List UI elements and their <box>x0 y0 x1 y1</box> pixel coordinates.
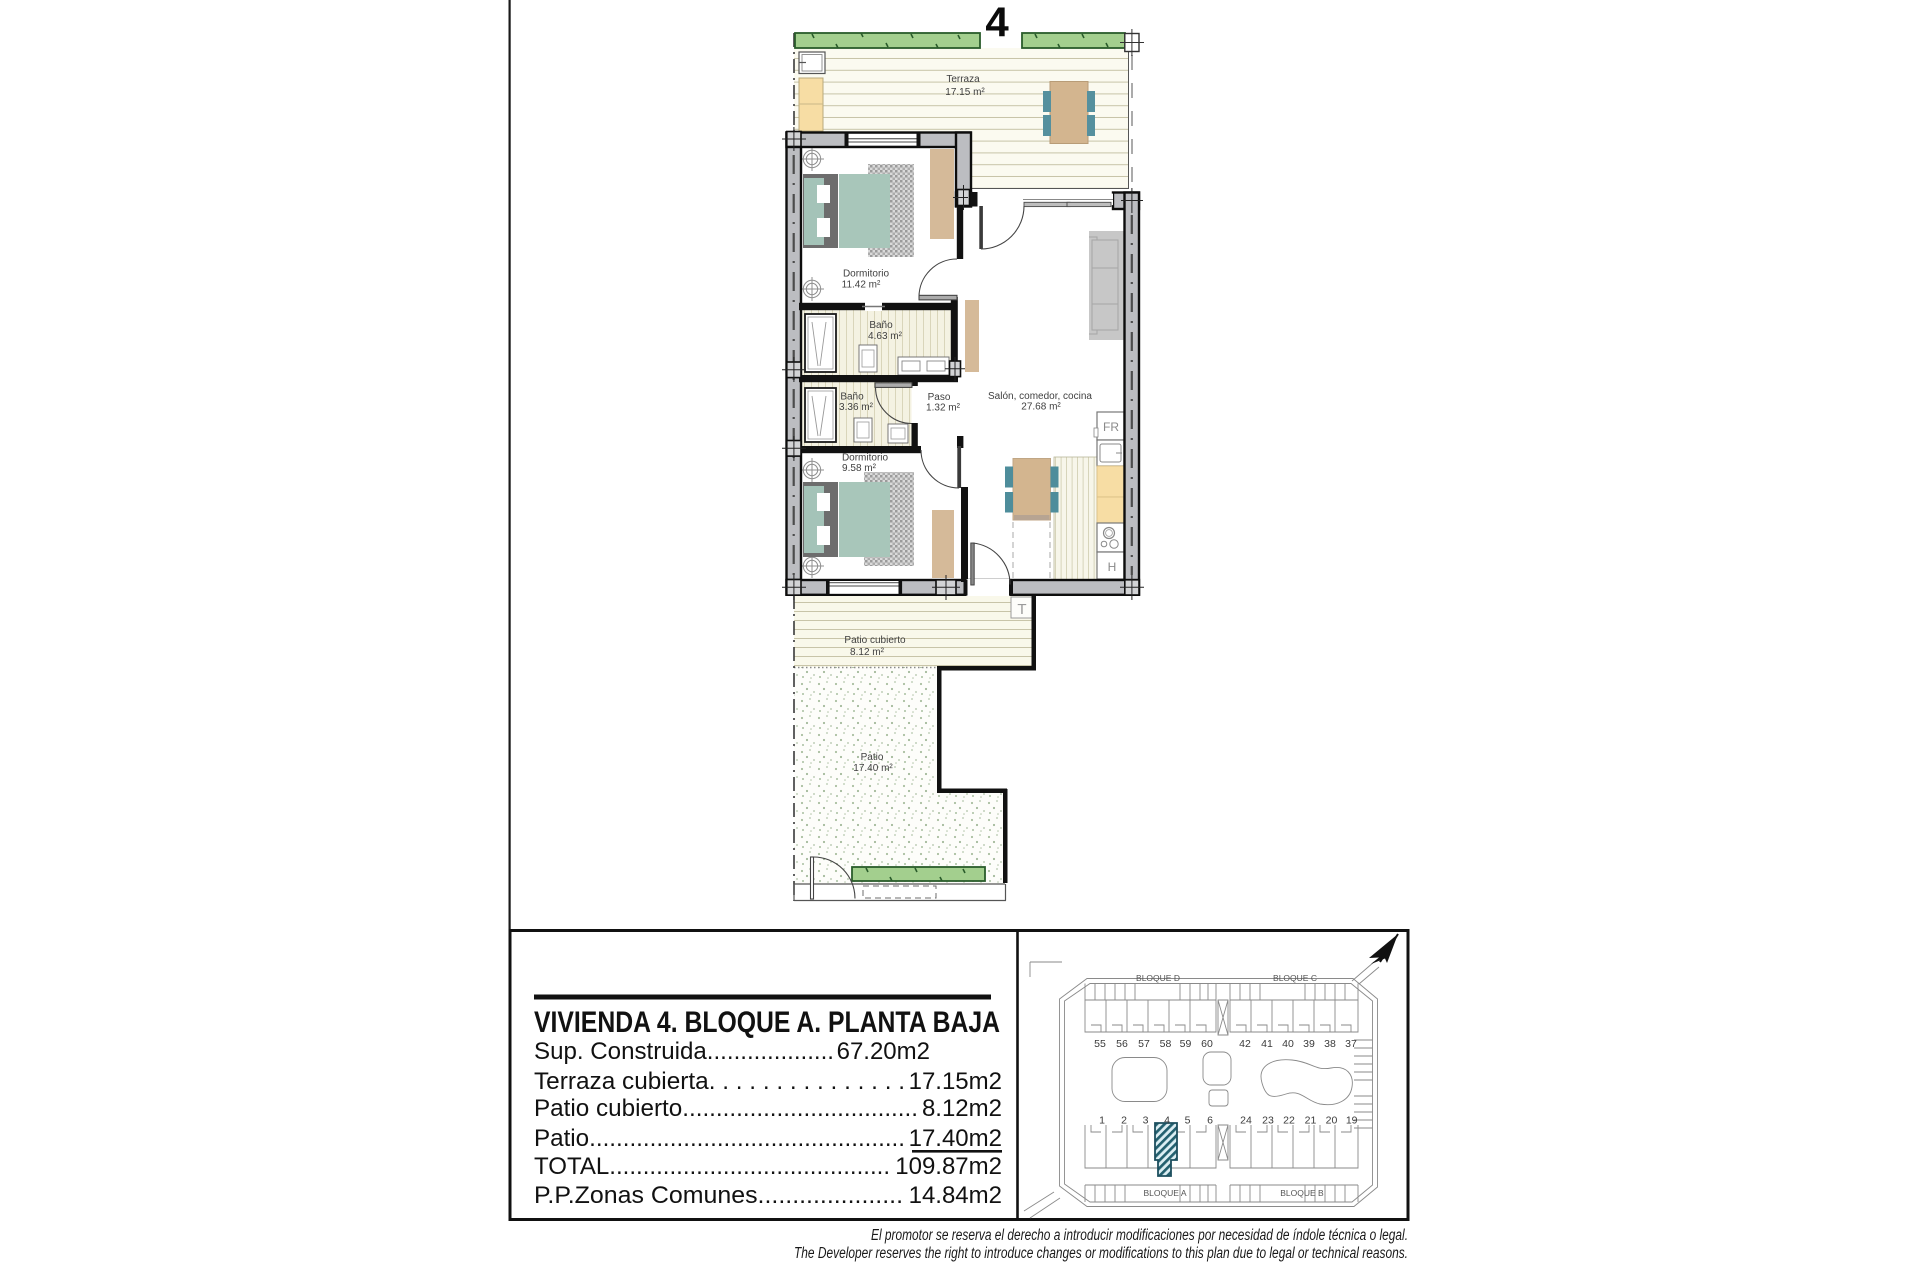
svg-text:4: 4 <box>1164 1115 1170 1127</box>
svg-text:6: 6 <box>1207 1115 1213 1127</box>
svg-text:23: 23 <box>1262 1115 1274 1127</box>
svg-text:57: 57 <box>1138 1038 1150 1050</box>
svg-text:TOTAL.........................: TOTAL...................................… <box>534 1153 890 1180</box>
svg-text:BLOQUE B: BLOQUE B <box>1280 1188 1324 1198</box>
svg-text:109.87m2: 109.87m2 <box>895 1153 1002 1180</box>
svg-text:Paso: Paso <box>928 392 951 403</box>
svg-text:BLOQUE A: BLOQUE A <box>1144 1188 1187 1198</box>
svg-text:2: 2 <box>1121 1115 1127 1127</box>
svg-text:19: 19 <box>1346 1115 1358 1127</box>
svg-text:27.68 m²: 27.68 m² <box>1021 402 1061 413</box>
svg-text:17.15m2: 17.15m2 <box>909 1068 1002 1095</box>
svg-text:Patio cubierto................: Patio cubierto..........................… <box>534 1095 918 1122</box>
svg-text:El promotor se reserva el dere: El promotor se reserva el derecho a intr… <box>871 1227 1408 1244</box>
svg-text:Patio.........................: Patio...................................… <box>534 1125 905 1152</box>
svg-text:Dormitorio: Dormitorio <box>842 453 889 464</box>
svg-text:58: 58 <box>1160 1038 1172 1050</box>
svg-text:67.20m2: 67.20m2 <box>837 1038 930 1065</box>
svg-text:8.12 m²: 8.12 m² <box>850 647 885 658</box>
svg-text:BLOQUE C: BLOQUE C <box>1273 973 1317 983</box>
svg-text:5: 5 <box>1185 1115 1191 1127</box>
svg-text:Terraza: Terraza <box>946 74 980 85</box>
svg-text:Patio: Patio <box>861 752 884 763</box>
svg-text:37: 37 <box>1345 1038 1357 1050</box>
svg-text:Patio cubierto: Patio cubierto <box>844 635 906 646</box>
svg-text:8.12m2: 8.12m2 <box>922 1095 1002 1122</box>
svg-text:FR: FR <box>1103 420 1119 434</box>
svg-text:1.32 m²: 1.32 m² <box>926 403 961 414</box>
svg-text:3.36 m²: 3.36 m² <box>839 402 874 413</box>
svg-text:39: 39 <box>1303 1038 1315 1050</box>
svg-text:VIVIENDA 4. BLOQUE A. PLANTA B: VIVIENDA 4. BLOQUE A. PLANTA BAJA <box>534 1006 1000 1039</box>
svg-text:17.40 m²: 17.40 m² <box>853 763 893 774</box>
svg-text:14.84m2: 14.84m2 <box>909 1182 1002 1209</box>
svg-text:BLOQUE D: BLOQUE D <box>1136 973 1180 983</box>
svg-text:60: 60 <box>1201 1038 1213 1050</box>
svg-text:55: 55 <box>1094 1038 1106 1050</box>
svg-text:59: 59 <box>1180 1038 1192 1050</box>
svg-text:17.15 m²: 17.15 m² <box>945 87 985 98</box>
svg-text:11.42 m²: 11.42 m² <box>842 280 881 291</box>
svg-text:17.40m2: 17.40m2 <box>909 1125 1002 1152</box>
svg-text:42: 42 <box>1239 1038 1251 1050</box>
svg-text:22: 22 <box>1283 1115 1295 1127</box>
svg-text:Terraza cubierta. . . . . . .: Terraza cubierta. . . . . . . . . . . . … <box>534 1068 905 1095</box>
svg-text:Salón, comedor, cocina: Salón, comedor, cocina <box>988 391 1092 402</box>
svg-text:38: 38 <box>1324 1038 1336 1050</box>
svg-text:Baño: Baño <box>869 320 893 331</box>
svg-text:40: 40 <box>1282 1038 1294 1050</box>
svg-text:56: 56 <box>1116 1038 1128 1050</box>
svg-text:Baño: Baño <box>840 392 864 403</box>
svg-text:The Developer reserves the rig: The Developer reserves the right to intr… <box>794 1245 1408 1262</box>
svg-text:T: T <box>1017 601 1026 618</box>
svg-text:4.63 m²: 4.63 m² <box>868 331 903 342</box>
svg-text:21: 21 <box>1305 1115 1317 1127</box>
svg-text:Sup. Construida...............: Sup. Construida................... <box>534 1038 834 1065</box>
svg-text:1: 1 <box>1099 1115 1105 1127</box>
svg-text:H: H <box>1108 560 1117 574</box>
svg-text:3: 3 <box>1143 1115 1149 1127</box>
svg-text:41: 41 <box>1261 1038 1273 1050</box>
svg-text:Dormitorio: Dormitorio <box>843 269 890 280</box>
svg-text:9.58 m²: 9.58 m² <box>842 463 877 474</box>
svg-text:4: 4 <box>985 0 1009 46</box>
svg-text:20: 20 <box>1326 1115 1338 1127</box>
svg-text:P.P.Zonas Comunes.............: P.P.Zonas Comunes..................... <box>534 1182 903 1209</box>
svg-text:24: 24 <box>1240 1115 1252 1127</box>
